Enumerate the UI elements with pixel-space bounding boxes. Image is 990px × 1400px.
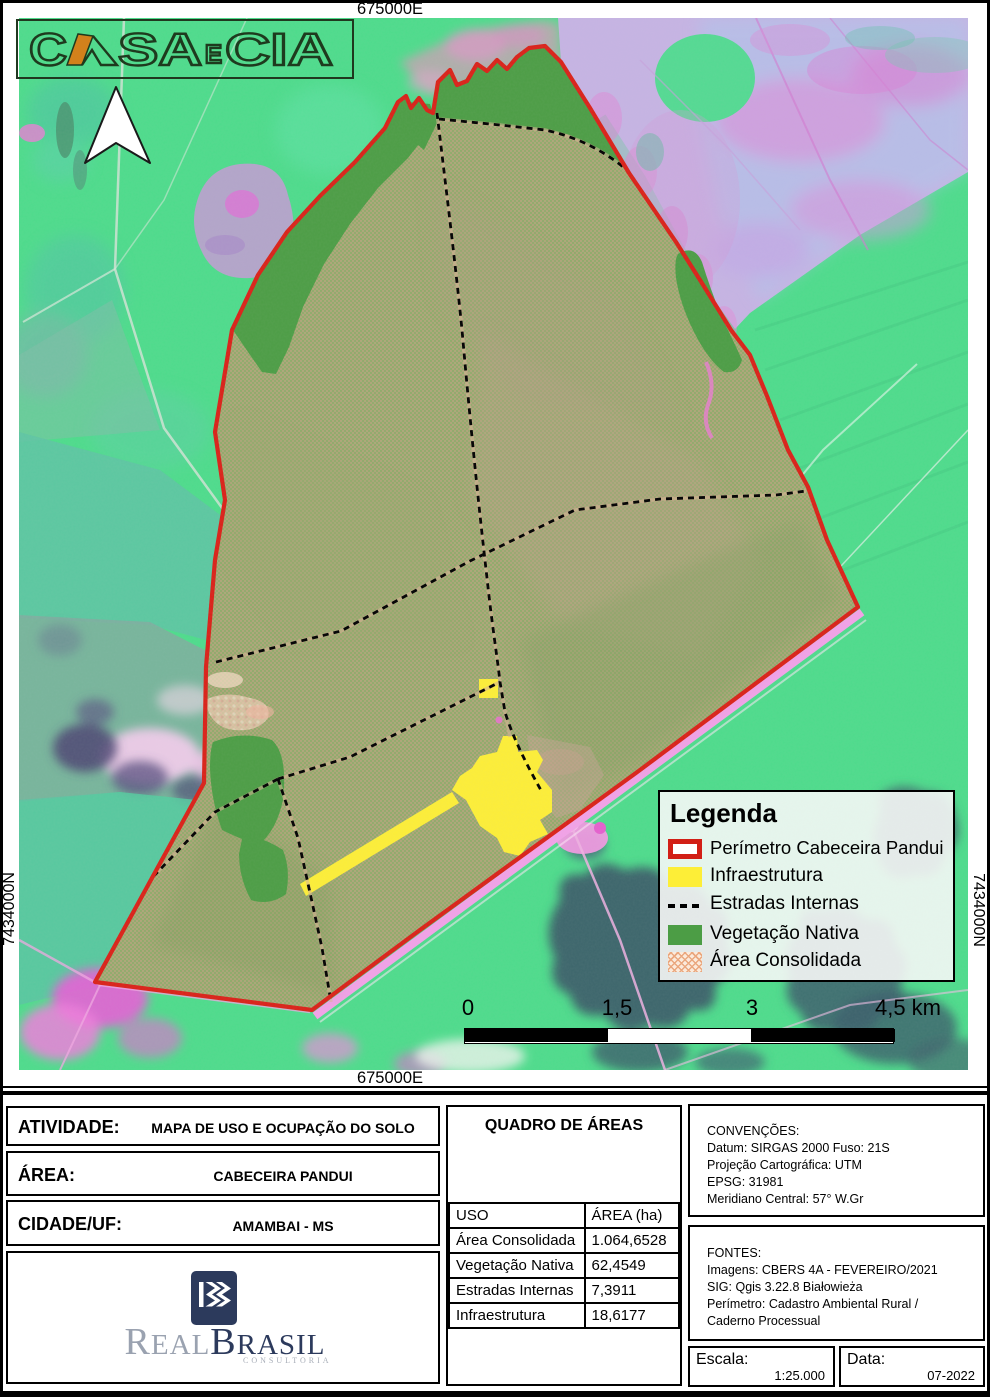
svg-text:E: E — [205, 39, 222, 69]
svg-text:C: C — [29, 24, 67, 75]
svg-text:SA: SA — [118, 24, 202, 75]
svg-text:CIA: CIA — [225, 24, 333, 75]
